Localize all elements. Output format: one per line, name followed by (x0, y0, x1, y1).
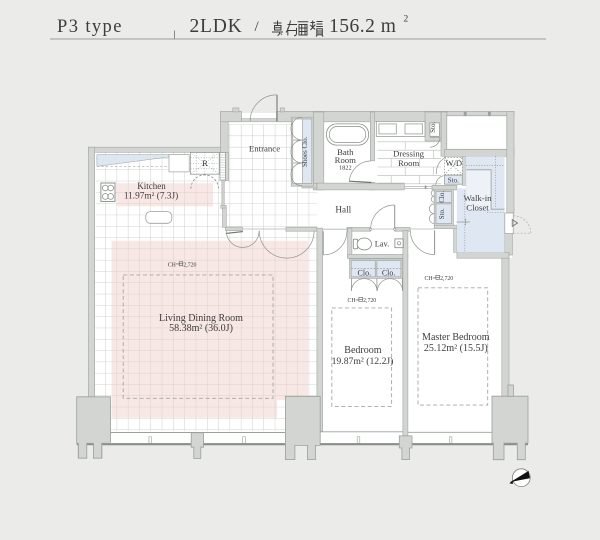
svg-text:Bedroom: Bedroom (344, 345, 381, 356)
svg-text:R: R (202, 158, 208, 168)
svg-text:P3 type: P3 type (57, 17, 123, 37)
svg-text:CH=: CH= (168, 262, 179, 268)
svg-text:25.12m² (15.5J): 25.12m² (15.5J) (424, 343, 488, 354)
svg-text:CH=: CH= (425, 276, 436, 282)
svg-text:CH=: CH= (348, 298, 359, 304)
svg-text:2,720: 2,720 (440, 276, 453, 282)
svg-text:2: 2 (404, 15, 409, 25)
svg-text:Master Bedroom: Master Bedroom (422, 332, 490, 343)
svg-text:Closet: Closet (466, 202, 489, 212)
svg-text:2,720: 2,720 (363, 298, 376, 304)
svg-text:Walk-in: Walk-in (463, 193, 492, 203)
svg-text:W/D: W/D (446, 158, 463, 168)
svg-text:Clo.: Clo. (438, 191, 446, 203)
svg-text:Entrance: Entrance (249, 144, 280, 154)
svg-text:Sto.: Sto. (448, 176, 459, 184)
svg-text:1822: 1822 (339, 165, 352, 172)
svg-text:Hall: Hall (335, 205, 351, 215)
svg-text:Room: Room (398, 158, 419, 168)
svg-text:Sto.: Sto. (438, 208, 446, 219)
svg-text:Clo.: Clo. (382, 268, 396, 277)
svg-text:11.97m² (7.3J): 11.97m² (7.3J) (124, 190, 178, 201)
svg-text:Sto.: Sto. (429, 122, 437, 133)
svg-text:58.38m² (36.0J): 58.38m² (36.0J) (169, 323, 233, 334)
svg-text:Lav.: Lav. (375, 240, 389, 249)
svg-text:2,720: 2,720 (183, 262, 196, 268)
svg-text:Shoes Clo.: Shoes Clo. (301, 136, 309, 167)
svg-text:19.87m² (12.2J): 19.87m² (12.2J) (332, 356, 394, 367)
svg-text:2LDK: 2LDK (190, 16, 243, 37)
svg-text:Kitchen: Kitchen (137, 181, 166, 191)
svg-text:156.2 m: 156.2 m (329, 16, 396, 37)
svg-text:Room: Room (335, 155, 356, 165)
svg-text:Clo.: Clo. (358, 268, 372, 277)
